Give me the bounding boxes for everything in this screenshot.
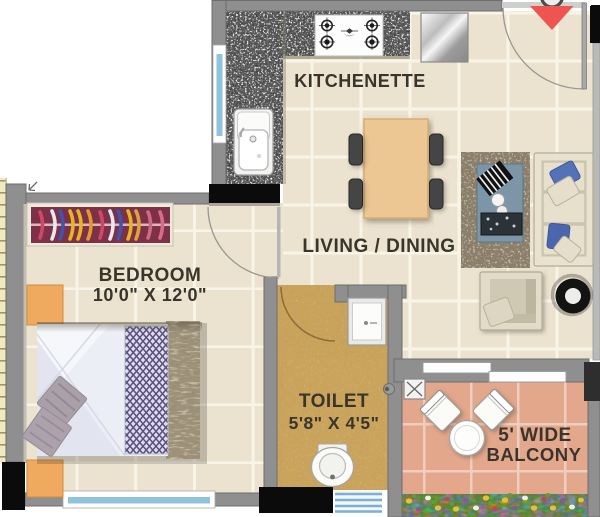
- svg-text:10'0" X 12'0": 10'0" X 12'0": [93, 285, 207, 305]
- svg-text:LIVING / DINING: LIVING / DINING: [302, 236, 455, 257]
- svg-text:KITCHENETTE: KITCHENETTE: [294, 71, 426, 91]
- svg-text:TOILET: TOILET: [299, 391, 369, 412]
- svg-text:BEDROOM: BEDROOM: [99, 265, 202, 286]
- svg-text:BALCONY: BALCONY: [487, 444, 582, 465]
- svg-text:5'8" X 4'5": 5'8" X 4'5": [289, 413, 380, 433]
- svg-text:5' WIDE: 5' WIDE: [498, 425, 571, 446]
